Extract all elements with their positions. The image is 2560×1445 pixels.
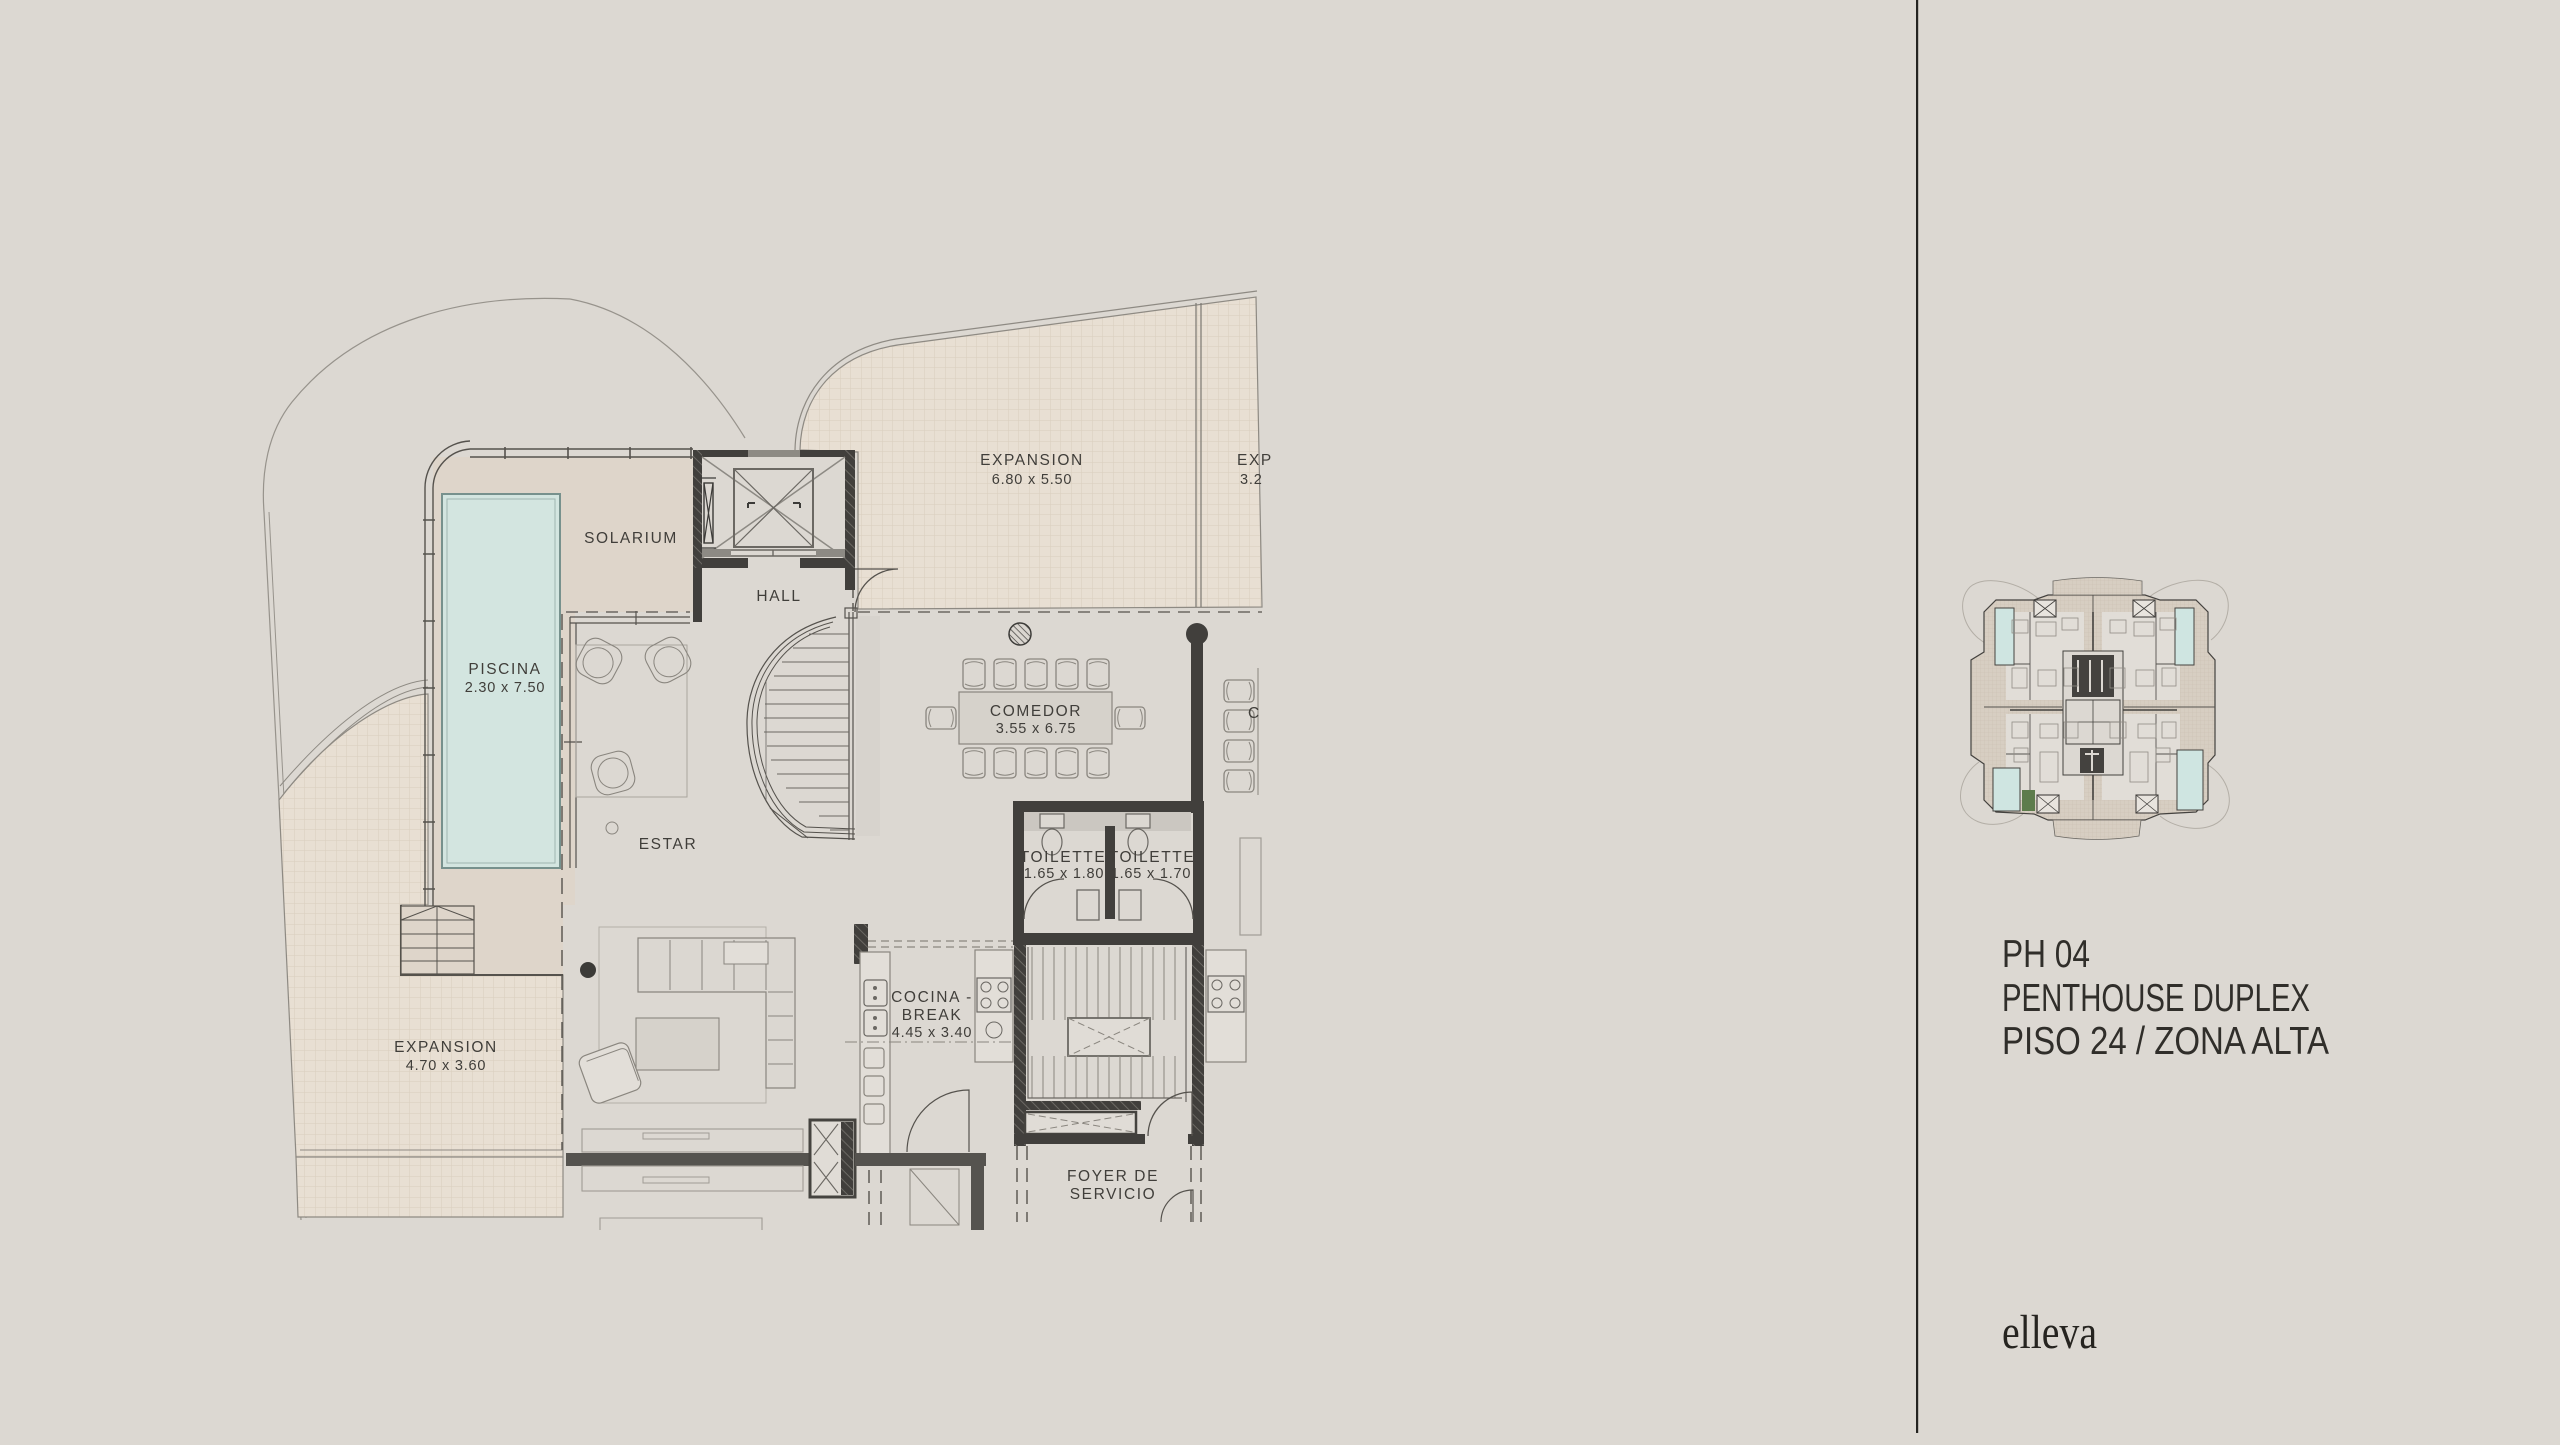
svg-text:SERVICIO: SERVICIO	[1070, 1186, 1157, 1203]
svg-text:FOYER DE: FOYER DE	[1067, 1168, 1159, 1185]
svg-text:COMEDOR: COMEDOR	[990, 703, 1082, 720]
svg-text:PH 04: PH 04	[2002, 933, 2090, 976]
svg-text:6.80 x 5.50: 6.80 x 5.50	[992, 472, 1073, 488]
svg-text:3.55 x 6.75: 3.55 x 6.75	[996, 721, 1077, 737]
svg-text:2.30 x 7.50: 2.30 x 7.50	[465, 680, 546, 696]
svg-text:COCINA -: COCINA -	[891, 989, 973, 1006]
svg-text:C: C	[1248, 705, 1261, 722]
svg-text:TOILETTE: TOILETTE	[1109, 849, 1196, 866]
svg-text:EXPANSION: EXPANSION	[980, 452, 1084, 469]
svg-text:3.2: 3.2	[1240, 472, 1263, 488]
svg-text:elleva: elleva	[2002, 1306, 2097, 1359]
svg-text:1.65 x 1.70: 1.65 x 1.70	[1111, 866, 1192, 882]
svg-text:BREAK: BREAK	[902, 1007, 963, 1024]
svg-text:4.70 x 3.60: 4.70 x 3.60	[406, 1058, 487, 1074]
svg-text:ESTAR: ESTAR	[639, 836, 698, 853]
svg-text:EXP: EXP	[1237, 452, 1273, 469]
svg-text:PENTHOUSE DUPLEX: PENTHOUSE DUPLEX	[2002, 977, 2310, 1020]
svg-text:SOLARIUM: SOLARIUM	[584, 530, 678, 547]
svg-text:TOILETTE: TOILETTE	[1020, 849, 1107, 866]
svg-text:4.45 x 3.40: 4.45 x 3.40	[892, 1025, 973, 1041]
svg-text:PISO 24 / ZONA ALTA: PISO 24 / ZONA ALTA	[2002, 1020, 2329, 1063]
svg-text:EXPANSION: EXPANSION	[394, 1039, 498, 1056]
svg-text:HALL: HALL	[756, 588, 801, 605]
svg-text:PISCINA: PISCINA	[468, 661, 541, 678]
